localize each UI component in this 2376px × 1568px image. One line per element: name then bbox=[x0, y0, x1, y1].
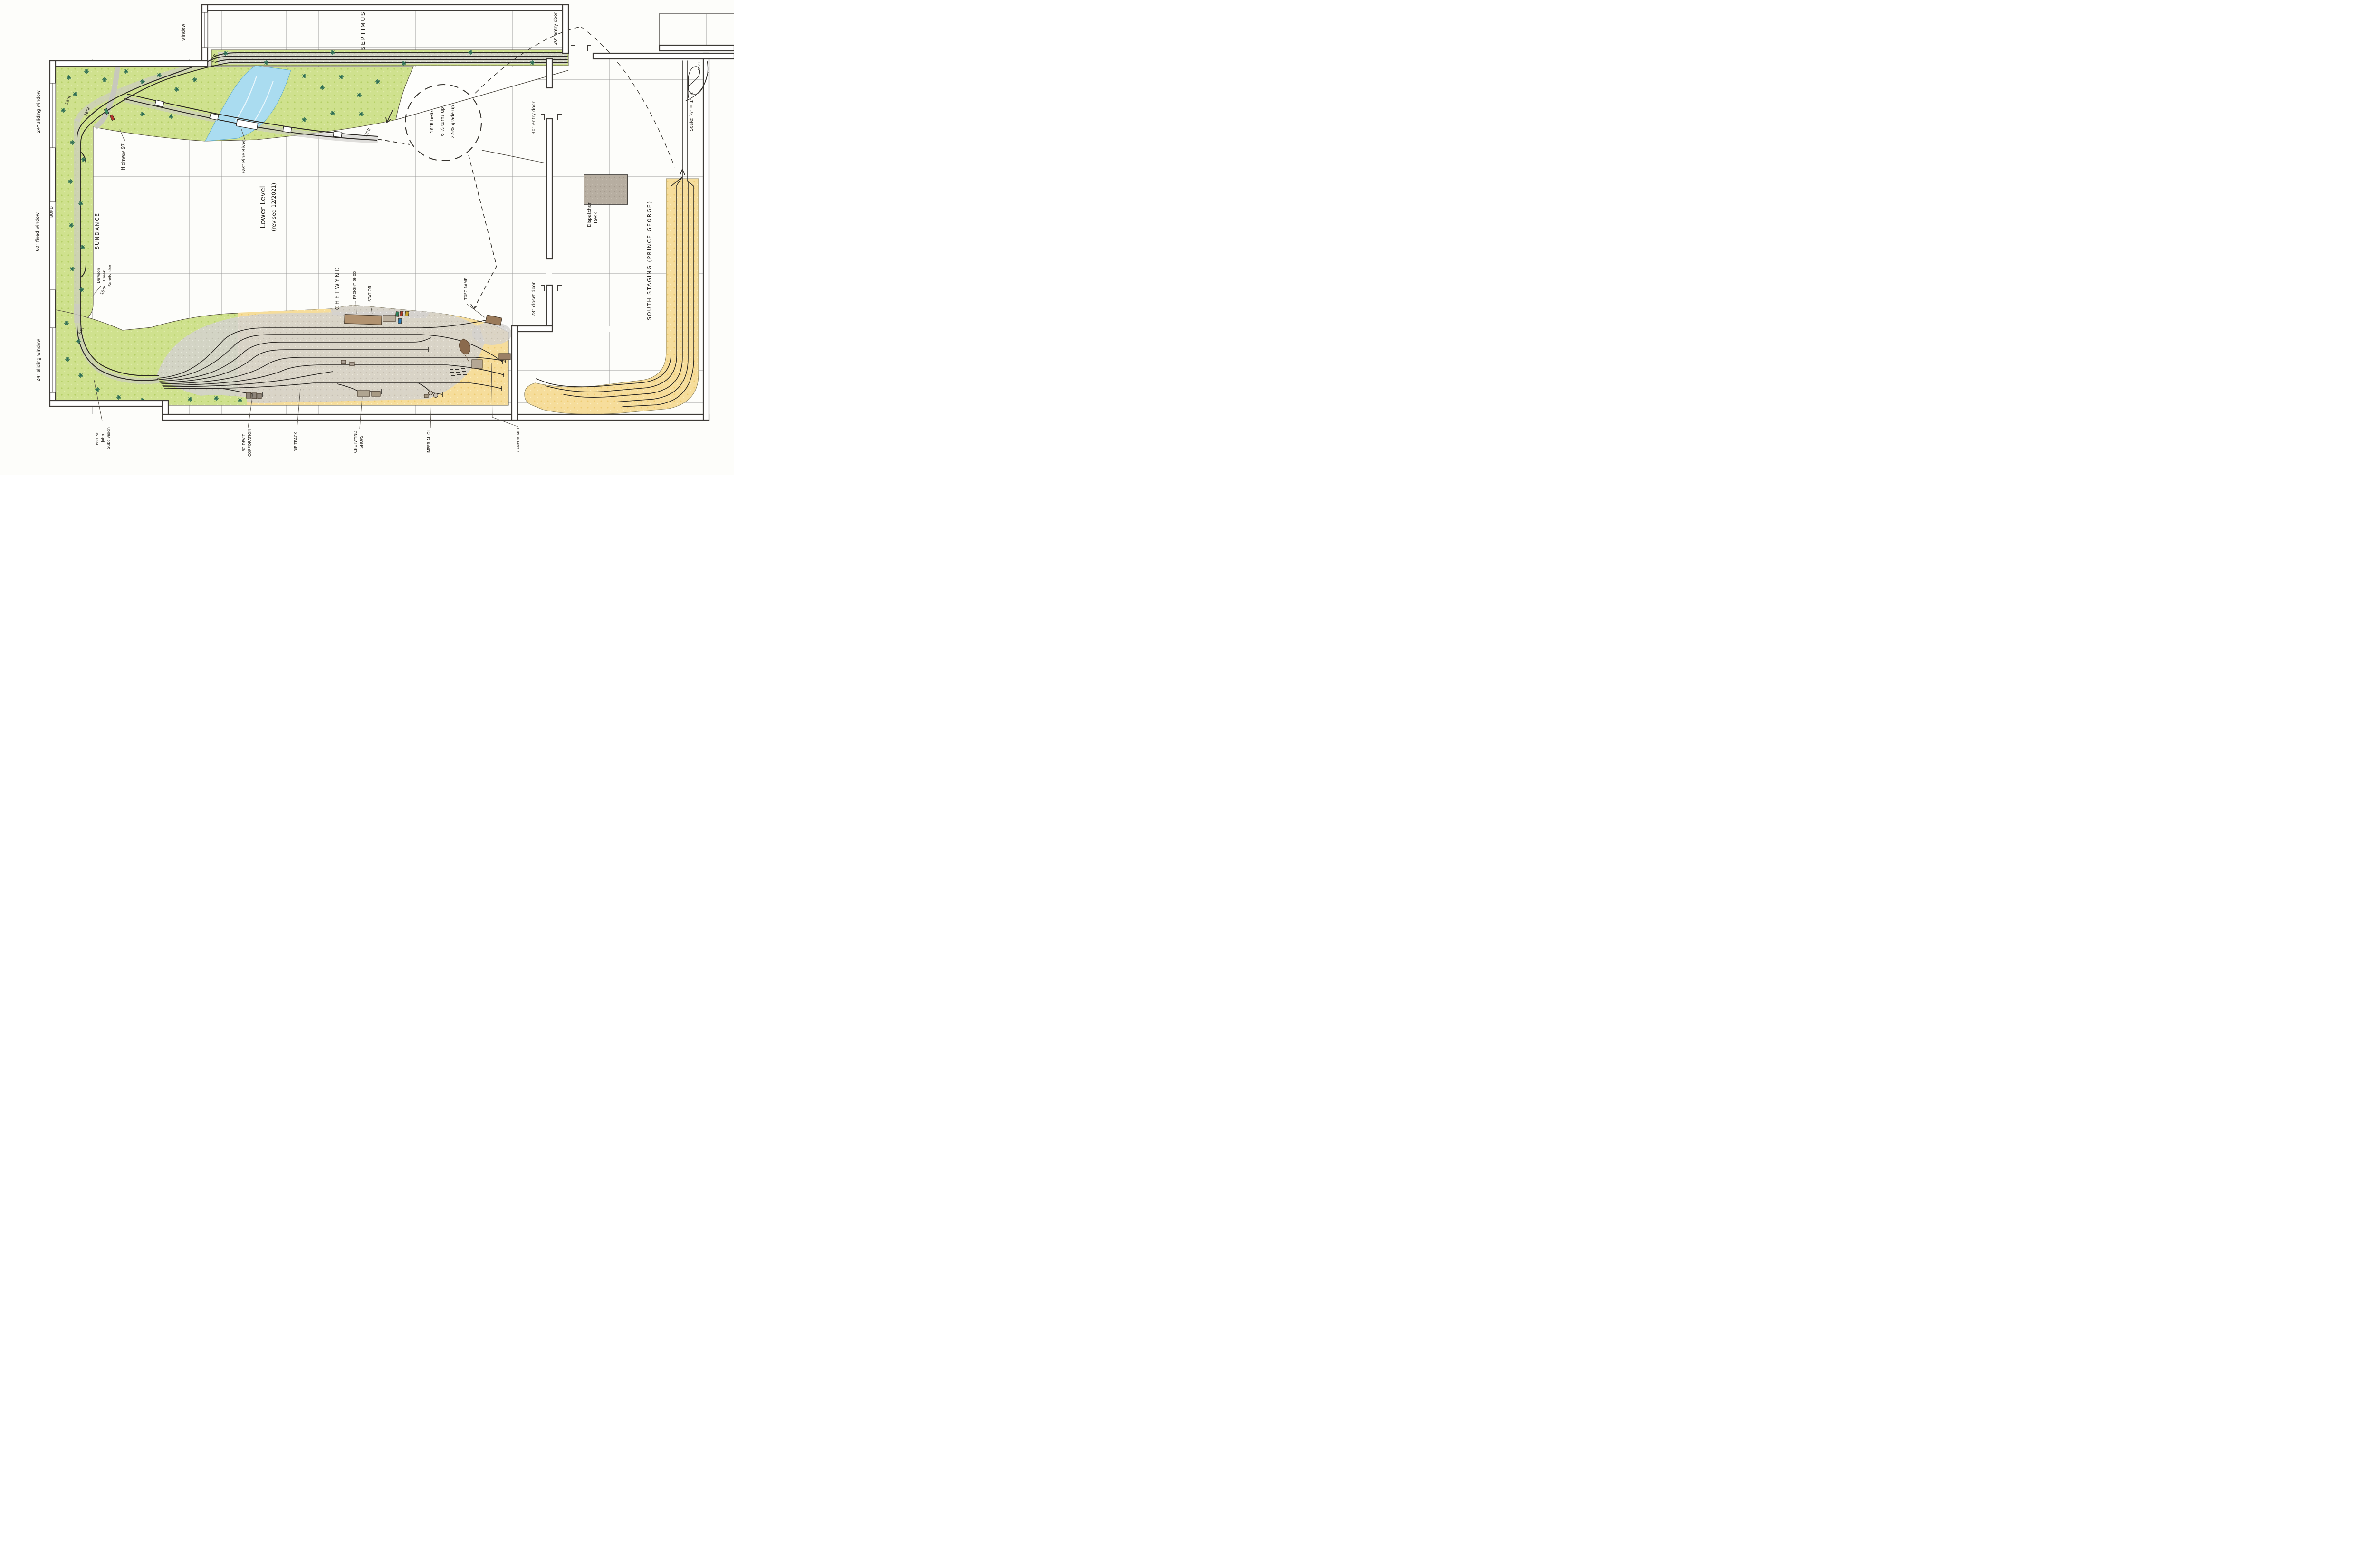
track-plan-sheet: window SEPTIMUS 18"R 30" entry door 24" … bbox=[0, 0, 734, 475]
mill-building bbox=[499, 354, 510, 360]
oil-tank bbox=[434, 393, 438, 398]
yard-shed bbox=[350, 362, 354, 366]
upper-sliding-window-label: 24" sliding window bbox=[36, 90, 41, 133]
side-entry-door-label: 30" entry door bbox=[531, 101, 537, 134]
freight-shed-building bbox=[345, 315, 382, 325]
bc-devt-label-line: BC DEV'T bbox=[242, 434, 246, 451]
canfor-mill-label: CANFOR MILL bbox=[516, 426, 520, 452]
chetwynd-shops-label-line: SHOPS bbox=[359, 435, 364, 448]
partition-wall-upper bbox=[546, 59, 552, 88]
helix-note-line: 6 ½ turns up bbox=[440, 107, 445, 136]
station-label: STATION bbox=[368, 286, 372, 302]
top-entry-door-label: 30" entry door bbox=[553, 12, 558, 45]
septimus-label: SEPTIMUS bbox=[359, 11, 366, 50]
fixed-window-label: 60" fixed window bbox=[35, 212, 40, 251]
plan-subtitle: (revised 12/2021) bbox=[270, 183, 277, 231]
wall-label-bond: BOND bbox=[49, 206, 54, 218]
south-staging-label: SOUTH STAGING (PRINCE GEORGE) bbox=[646, 201, 652, 320]
track-plan-drawing: window SEPTIMUS 18"R 30" entry door 24" … bbox=[0, 0, 734, 475]
dispatcher-desk bbox=[584, 175, 628, 204]
oil-tank bbox=[429, 391, 433, 395]
exterior-top-right-wall bbox=[660, 45, 734, 51]
red-vehicle bbox=[400, 311, 403, 316]
alcove-top-wall bbox=[202, 5, 568, 10]
scale-note: Scale: ¾" = 1' bbox=[689, 99, 694, 131]
right-wall bbox=[703, 53, 709, 420]
yard-shed bbox=[341, 360, 346, 364]
dawson-creek-label-line: Dawson bbox=[96, 268, 101, 283]
dispatcher-desk-label-line: Dispatcher bbox=[587, 202, 592, 227]
oil-shed bbox=[424, 394, 428, 398]
highway-label: Highway 97 bbox=[121, 143, 126, 170]
top-right-wall bbox=[593, 53, 734, 59]
bottom-wall bbox=[163, 414, 709, 420]
left-windows bbox=[50, 83, 56, 392]
yellow-vehicle bbox=[405, 311, 409, 316]
closet-door-label: 28" closet door bbox=[531, 282, 537, 316]
chetwynd-shops-building bbox=[372, 392, 380, 396]
bottom-left-wall bbox=[50, 401, 168, 406]
chetwynd-shops-label-line: CHETWYND bbox=[354, 431, 358, 453]
lower-sliding-window-label: 24" sliding window bbox=[36, 339, 41, 382]
mill-building bbox=[472, 360, 482, 368]
plan-title: Lower Level bbox=[259, 186, 267, 228]
sundance-label: SUNDANCE bbox=[94, 212, 100, 249]
rip-track-label: RIP TRACK bbox=[294, 431, 298, 451]
chetwynd-label: CHETWYND bbox=[334, 266, 341, 310]
grid-area bbox=[663, 14, 734, 45]
chetwynd-shops-building bbox=[357, 391, 370, 396]
top-left-wall bbox=[50, 61, 208, 67]
helix-note-line: 2.5% grade up bbox=[450, 105, 456, 138]
station-building bbox=[383, 316, 395, 322]
closet-side-wall bbox=[512, 326, 517, 420]
grid-area bbox=[208, 10, 563, 50]
freight-shed-label: FREIGHT SHED bbox=[353, 271, 357, 299]
fort-st-john-label-line: John bbox=[101, 434, 105, 442]
partition-wall-lower bbox=[546, 285, 552, 326]
fort-st-john-label-line: Fort St. bbox=[95, 431, 99, 445]
river-label: East Pine River bbox=[241, 140, 247, 173]
dawson-creek-label-line: Creek bbox=[102, 270, 106, 281]
green-vehicle bbox=[395, 312, 399, 317]
imperial-oil-label: IMPERIAL OIL bbox=[427, 428, 431, 453]
bc-devt-building bbox=[246, 392, 251, 398]
dispatcher-desk-label-line: Desk bbox=[594, 212, 599, 223]
bc-devt-building bbox=[258, 393, 261, 399]
alcove-right-wall bbox=[563, 5, 568, 53]
helix-note-line: 16"R helix bbox=[430, 110, 435, 133]
bc-devt-label-line: CORPORATION bbox=[248, 429, 252, 457]
alcove-window-label: window bbox=[181, 24, 186, 41]
partition-wall-middle bbox=[546, 119, 552, 259]
fort-st-john-label-line: Subdivision bbox=[106, 427, 111, 449]
tofc-ramp-label: TOFC RAMP bbox=[464, 278, 468, 301]
dawson-creek-label-line: Subdivision bbox=[108, 265, 112, 287]
blue-vehicle bbox=[398, 318, 402, 324]
